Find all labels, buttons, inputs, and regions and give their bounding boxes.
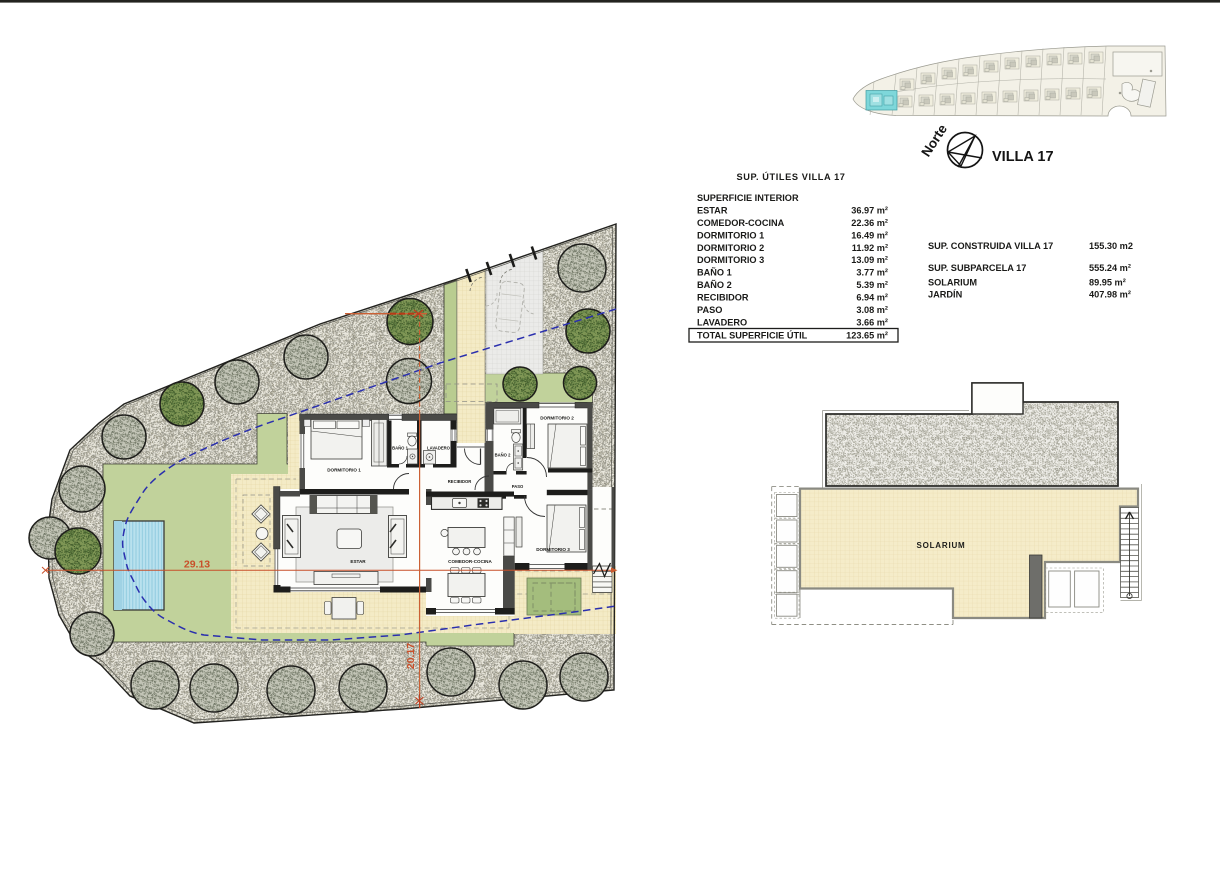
- svg-text:TOTAL SUPERFICIE ÚTIL: TOTAL SUPERFICIE ÚTIL: [697, 330, 808, 341]
- svg-text:SUP. SUBPARCELA 17: SUP. SUBPARCELA 17: [928, 263, 1026, 273]
- svg-text:DORMITORIO 1: DORMITORIO 1: [697, 230, 764, 240]
- svg-text:LAVADERO: LAVADERO: [427, 446, 451, 451]
- svg-text:BAÑO 1: BAÑO 1: [392, 446, 408, 451]
- svg-text:JARDÍN: JARDÍN: [928, 289, 963, 300]
- svg-text:11.92 m²: 11.92 m²: [852, 243, 888, 253]
- svg-text:PASO: PASO: [512, 484, 524, 489]
- svg-text:DORMITORIO 3: DORMITORIO 3: [536, 547, 570, 552]
- svg-text:COMEDOR-COCINA: COMEDOR-COCINA: [697, 218, 785, 228]
- svg-text:22.36 m²: 22.36 m²: [851, 218, 888, 228]
- svg-text:LAVADERO: LAVADERO: [697, 318, 747, 328]
- svg-text:DORMITORIO 3: DORMITORIO 3: [697, 255, 764, 265]
- svg-text:16.49 m²: 16.49 m²: [851, 230, 888, 240]
- svg-text:123.65 m²: 123.65 m²: [846, 331, 888, 341]
- svg-text:DORMITORIO 1: DORMITORIO 1: [327, 468, 361, 473]
- svg-text:13.09 m²: 13.09 m²: [851, 255, 888, 265]
- svg-text:89.95 m²: 89.95 m²: [1089, 278, 1126, 288]
- svg-text:PASO: PASO: [697, 305, 722, 315]
- svg-text:BAÑO 1: BAÑO 1: [697, 268, 732, 278]
- svg-text:SUP. CONSTRUIDA VILLA 17: SUP. CONSTRUIDA VILLA 17: [928, 241, 1053, 251]
- svg-text:3.77 m²: 3.77 m²: [856, 268, 888, 278]
- svg-text:BAÑO 2: BAÑO 2: [697, 280, 732, 290]
- svg-text:DORMITORIO 2: DORMITORIO 2: [697, 243, 764, 253]
- svg-text:3.66 m²: 3.66 m²: [856, 318, 888, 328]
- svg-text:29.13: 29.13: [184, 559, 210, 571]
- svg-text:RECIBIDOR: RECIBIDOR: [697, 293, 749, 303]
- svg-text:3.08 m²: 3.08 m²: [856, 305, 888, 315]
- svg-text:ESTAR: ESTAR: [697, 205, 728, 215]
- svg-text:155.30 m2: 155.30 m2: [1089, 241, 1133, 251]
- svg-text:RECIBIDOR: RECIBIDOR: [448, 479, 472, 484]
- svg-text:SUPERFICIE INTERIOR: SUPERFICIE INTERIOR: [697, 193, 799, 203]
- svg-text:BAÑO 2: BAÑO 2: [495, 453, 511, 458]
- svg-text:VILLA 17: VILLA 17: [992, 149, 1054, 165]
- svg-text:36.97 m²: 36.97 m²: [851, 205, 888, 215]
- svg-text:DORMITORIO 2: DORMITORIO 2: [540, 416, 574, 421]
- svg-text:SOLARIUM: SOLARIUM: [928, 278, 977, 288]
- svg-text:ESTAR: ESTAR: [350, 559, 366, 564]
- svg-text:SOLARIUM: SOLARIUM: [916, 541, 965, 550]
- svg-text:COMEDOR-COCINA: COMEDOR-COCINA: [448, 559, 492, 564]
- svg-text:SUP. ÚTILES VILLA 17: SUP. ÚTILES VILLA 17: [736, 171, 845, 182]
- svg-text:5.39 m²: 5.39 m²: [856, 280, 888, 290]
- svg-text:407.98 m²: 407.98 m²: [1089, 290, 1131, 300]
- svg-text:20.17: 20.17: [405, 643, 417, 669]
- svg-text:555.24 m²: 555.24 m²: [1089, 263, 1131, 273]
- svg-text:6.94 m²: 6.94 m²: [856, 293, 888, 303]
